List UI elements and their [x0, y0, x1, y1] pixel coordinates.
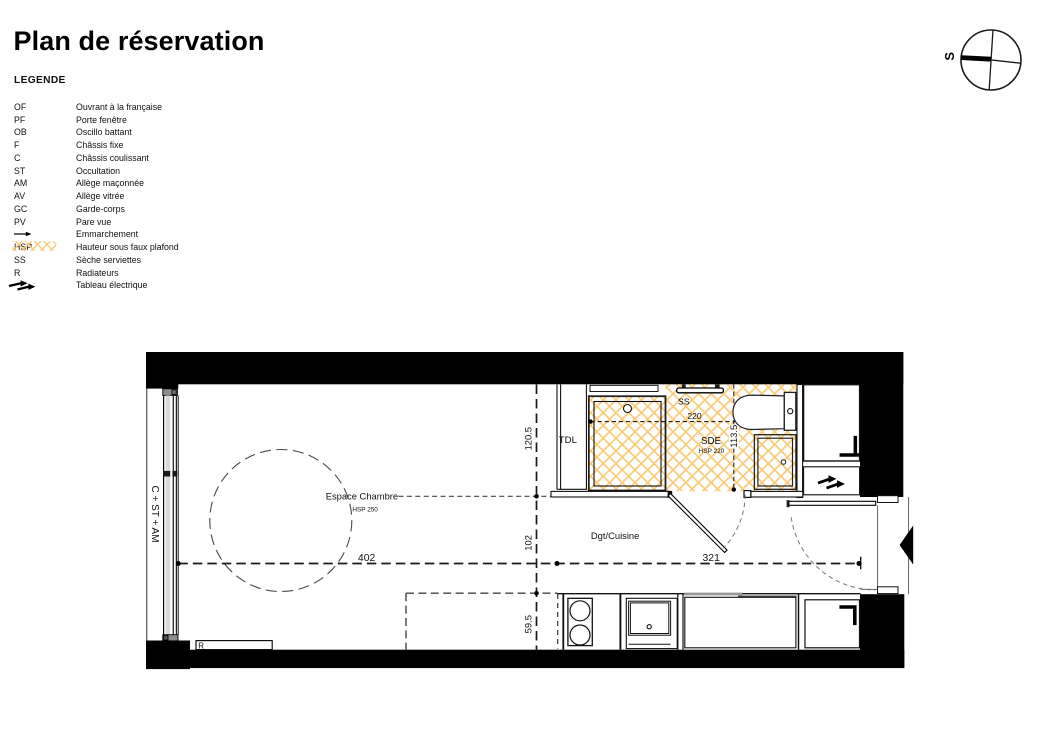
- svg-text:SDE: SDE: [701, 436, 721, 447]
- svg-text:102: 102: [523, 535, 534, 551]
- svg-text:220: 220: [687, 411, 702, 421]
- svg-text:TDL: TDL: [559, 435, 578, 446]
- svg-text:R: R: [198, 642, 204, 651]
- svg-text:113.5: 113.5: [728, 425, 739, 448]
- svg-text:HSP 220: HSP 220: [699, 448, 725, 455]
- svg-text:321: 321: [703, 553, 721, 564]
- svg-text:S: S: [942, 52, 957, 61]
- svg-text:HSP 250: HSP 250: [352, 507, 378, 514]
- svg-text:Espace Chambre: Espace Chambre: [326, 490, 398, 501]
- svg-text:120.5: 120.5: [523, 427, 534, 450]
- svg-text:Dgt/Cuisine: Dgt/Cuisine: [591, 530, 639, 541]
- svg-text:C + ST + AM: C + ST + AM: [149, 486, 160, 543]
- svg-text:402: 402: [358, 553, 376, 564]
- svg-text:59.5: 59.5: [523, 615, 534, 633]
- svg-text:SS: SS: [678, 396, 690, 406]
